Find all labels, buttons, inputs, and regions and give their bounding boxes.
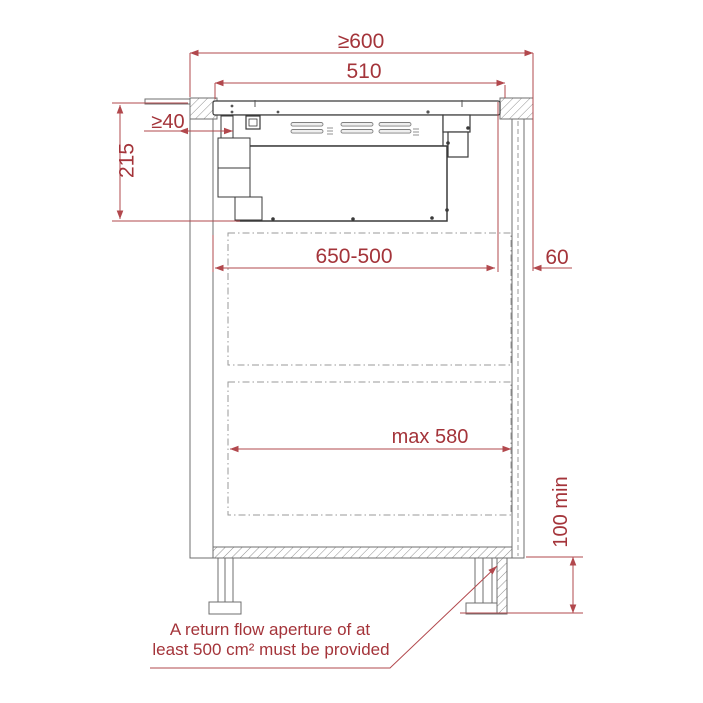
note-text-line2: least 500 cm² must be provided	[120, 640, 422, 659]
dim-label-adjustable-depth: 650-500	[304, 246, 404, 267]
dim-label-drawer-max-width: max 580	[370, 427, 490, 447]
note-text-line1: A return flow aperture of at	[119, 620, 421, 639]
dim-label-hob-width: 510	[323, 61, 405, 82]
duct-box-lower	[218, 168, 250, 197]
installation-diagram: ≥600 510 ≥40 215 650-500 60 max 580 100 …	[0, 0, 703, 703]
dim-label-worktop-min-width: ≥600	[320, 31, 402, 52]
right-foot	[466, 603, 497, 614]
worktop-section-right	[500, 98, 533, 119]
duct-box-upper	[218, 138, 250, 168]
cabinet-bottom-panel	[213, 547, 512, 558]
dim-label-duct-min-gap: ≥40	[148, 112, 188, 132]
drawer-outlines	[228, 233, 511, 515]
dim-label-rear-clearance: 60	[537, 247, 577, 268]
right-bracket-outer	[443, 115, 470, 132]
extractor-motor-body	[237, 146, 447, 221]
housing-connector-inner	[249, 119, 257, 126]
left-foot	[209, 602, 241, 614]
cabinet-left-wall	[190, 119, 213, 558]
duct-box-bottom	[235, 197, 262, 220]
duct-bracket-top	[221, 116, 233, 138]
cabinet-legs	[209, 558, 497, 614]
diagram-canvas	[0, 0, 703, 703]
right-bracket-inner	[448, 132, 468, 157]
hob-extractor-appliance	[213, 100, 500, 221]
hob-top-plate	[213, 101, 500, 115]
dim-label-plinth-min-height: 100 min	[551, 472, 571, 552]
dim-label-depth-below-worktop: 215	[117, 131, 138, 191]
plinth-panel	[497, 558, 507, 614]
